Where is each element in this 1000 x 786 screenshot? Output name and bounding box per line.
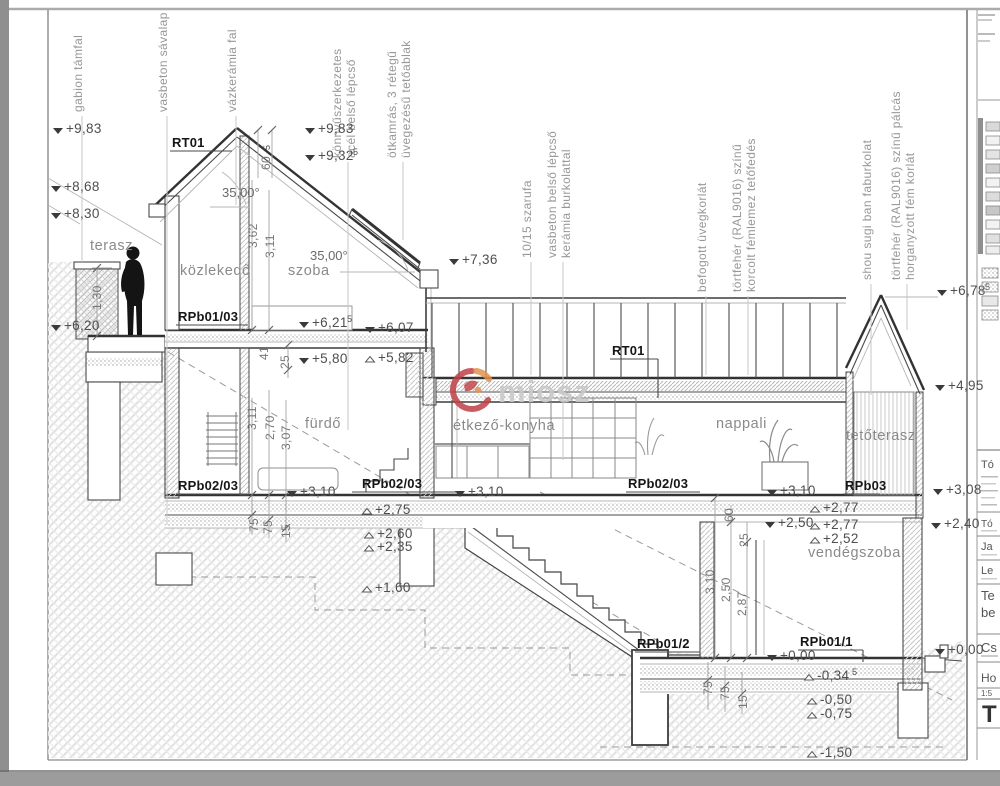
svg-text:75: 75 bbox=[718, 686, 732, 700]
ref-rpb0203-c: RPb02/03 bbox=[628, 476, 688, 491]
wall-tetoterasz-east bbox=[916, 392, 923, 518]
ref-rpb011: RPb01/1 bbox=[800, 634, 853, 649]
label-lepcso-2: acél belső lépcső bbox=[344, 59, 358, 158]
svg-text:1,30: 1,30 bbox=[90, 285, 104, 310]
level: +1,60 bbox=[375, 580, 411, 595]
ref-rpb0203-a: RPb02/03 bbox=[178, 478, 238, 493]
room-tetoterasz: tetőterasz bbox=[846, 428, 916, 444]
footing-east-wall bbox=[898, 683, 928, 738]
label-belso-lepcso-2: kerámia burkolattal bbox=[559, 149, 573, 258]
svg-text:3,10: 3,10 bbox=[703, 569, 717, 594]
level: +6,21 bbox=[312, 315, 348, 330]
level: +2,77 bbox=[823, 500, 859, 515]
architectural-section-sheet: miosz gabion támfal vasbeton sávalap váz… bbox=[0, 0, 1000, 786]
level: +2,35 bbox=[377, 539, 413, 554]
level: +6,78 bbox=[950, 283, 986, 298]
titleblock-entry: Le bbox=[981, 565, 993, 577]
svg-text:60: 60 bbox=[722, 508, 736, 522]
label-femlemez-1: törtfehér (RAL9016) színű bbox=[730, 144, 744, 292]
svg-text:25: 25 bbox=[737, 533, 751, 547]
svg-text:3,11: 3,11 bbox=[263, 234, 277, 258]
svg-text:75: 75 bbox=[261, 520, 275, 534]
svg-text:15: 15 bbox=[736, 695, 750, 709]
svg-text:3,11: 3,11 bbox=[245, 406, 259, 430]
svg-text:2,70: 2,70 bbox=[263, 415, 277, 440]
svg-text:60: 60 bbox=[259, 156, 273, 170]
level: +3,10 bbox=[300, 484, 336, 499]
room-vendegszoba: vendégszoba bbox=[808, 545, 901, 561]
eave-gutter-left bbox=[149, 204, 165, 217]
titleblock-entry: Ho bbox=[981, 671, 997, 685]
titleblock-entry: Ja bbox=[981, 541, 994, 553]
ref-rpb0103: RPb01/03 bbox=[178, 309, 238, 324]
label-savalap: vasbeton sávalap bbox=[156, 12, 170, 112]
svg-text:25: 25 bbox=[278, 355, 292, 369]
level: +8,68 bbox=[64, 179, 100, 194]
svg-text:15: 15 bbox=[279, 524, 293, 538]
angle-a: 35,00° bbox=[222, 185, 260, 200]
level: +0,00 bbox=[948, 642, 984, 657]
svg-text:3,62: 3,62 bbox=[246, 223, 260, 248]
ref-rt01-a: RT01 bbox=[172, 135, 205, 150]
titleblock-sheet-letter: T bbox=[982, 701, 997, 728]
level: +3,10 bbox=[780, 483, 816, 498]
label-lepcso-1: könnyűszerkezetes bbox=[330, 48, 344, 158]
label-shousugi: shou sugi ban faburkolat bbox=[860, 139, 874, 280]
label-femkorlat-2: horganyzott fém korlát bbox=[903, 152, 917, 280]
ref-rpb0203-b: RPb02/03 bbox=[362, 476, 422, 491]
label-femlemez-2: korcolt fémlemez tetőfedés bbox=[744, 138, 758, 292]
titleblock-entry: Tó bbox=[981, 519, 993, 530]
kitchen-cabinets bbox=[434, 444, 530, 478]
titleblock-entry: Tó bbox=[981, 459, 994, 471]
level: +3,10 bbox=[468, 484, 504, 499]
ref-rpb03: RPb03 bbox=[845, 478, 886, 493]
room-kozlekedo: közlekedő bbox=[180, 263, 251, 279]
svg-text:3,07: 3,07 bbox=[279, 425, 293, 450]
room-furdo: fürdő bbox=[305, 416, 341, 432]
svg-text:75: 75 bbox=[247, 518, 261, 532]
svg-text:5: 5 bbox=[347, 314, 352, 324]
terrace-slab bbox=[88, 336, 165, 352]
level: +6,20 bbox=[64, 318, 100, 333]
room-etkezo: étkező-konyha bbox=[453, 418, 555, 434]
svg-text:2,87: 2,87 bbox=[735, 591, 749, 616]
level: +9,83 bbox=[66, 121, 102, 136]
level: +2,52 bbox=[823, 531, 859, 546]
svg-text:5: 5 bbox=[353, 147, 358, 157]
level: +9,32 bbox=[318, 148, 354, 163]
wall-vendegszoba-east bbox=[903, 518, 922, 690]
level: +7,36 bbox=[462, 252, 498, 267]
level: +9,83 bbox=[318, 121, 354, 136]
svg-text:41: 41 bbox=[257, 346, 271, 360]
level: +2,77 bbox=[823, 517, 859, 532]
level: -0,75 bbox=[820, 706, 852, 721]
label-tetoablak-2: üvegezésű tetőablak bbox=[399, 40, 413, 158]
watermark-text: miosz bbox=[498, 374, 591, 409]
level: +2,75 bbox=[375, 502, 411, 517]
titleblock-scale: 1:5 bbox=[981, 689, 993, 698]
level: +2,40 bbox=[944, 516, 980, 531]
room-nappali: nappali bbox=[716, 416, 767, 432]
floor-slab-vendegszoba bbox=[640, 658, 922, 694]
svg-text:5: 5 bbox=[262, 145, 272, 150]
label-uvegkorlat: befogott üvegkorlát bbox=[695, 182, 709, 292]
level: -1,50 bbox=[820, 745, 852, 760]
terrace-footing bbox=[86, 352, 162, 382]
label-tetoablak-1: ötkamrás, 3 rétegű bbox=[385, 51, 399, 158]
titleblock-entry: Cs bbox=[981, 640, 997, 655]
footing-left-wall bbox=[156, 553, 192, 585]
label-szarufa: 10/15 szarufa bbox=[520, 180, 534, 258]
level: +5,82 bbox=[378, 350, 414, 365]
titleblock-entry: be bbox=[981, 605, 995, 620]
svg-text:75: 75 bbox=[701, 681, 715, 695]
level: +6,07 bbox=[378, 320, 414, 335]
room-terasz: terasz bbox=[90, 238, 133, 254]
level: -0,50 bbox=[820, 692, 852, 707]
level: +3,08 bbox=[946, 482, 982, 497]
level: +2,50 bbox=[778, 515, 814, 530]
bottom-margin-bar bbox=[0, 772, 1000, 786]
left-margin-bar bbox=[0, 0, 9, 786]
svg-text:5: 5 bbox=[852, 667, 857, 677]
level: +5,80 bbox=[312, 351, 348, 366]
label-vazkeramia: vázkerámia fal bbox=[225, 29, 239, 112]
label-femkorlat-1: törtfehér (RAL9016) színű pálcás bbox=[889, 91, 903, 280]
level: +8,30 bbox=[64, 206, 100, 221]
ref-rpb012: RPb01/2 bbox=[637, 636, 690, 651]
label-gabion: gabion támfal bbox=[71, 35, 85, 112]
level: +0,00 bbox=[780, 648, 816, 663]
room-szoba: szoba bbox=[288, 263, 330, 279]
svg-text:2,50: 2,50 bbox=[719, 577, 733, 602]
level: +4,95 bbox=[948, 378, 984, 393]
titleblock-entry: Te bbox=[981, 588, 995, 603]
eave-box-right bbox=[420, 270, 438, 288]
ground-slab-left bbox=[165, 495, 465, 530]
level: -0,34 bbox=[817, 668, 849, 683]
label-belso-lepcso-1: vasbeton belső lépcső bbox=[545, 131, 559, 258]
angle-b: 35,00° bbox=[310, 248, 348, 263]
ref-rt01-b: RT01 bbox=[612, 343, 645, 358]
section-drawing: miosz gabion támfal vasbeton sávalap váz… bbox=[0, 0, 1000, 786]
